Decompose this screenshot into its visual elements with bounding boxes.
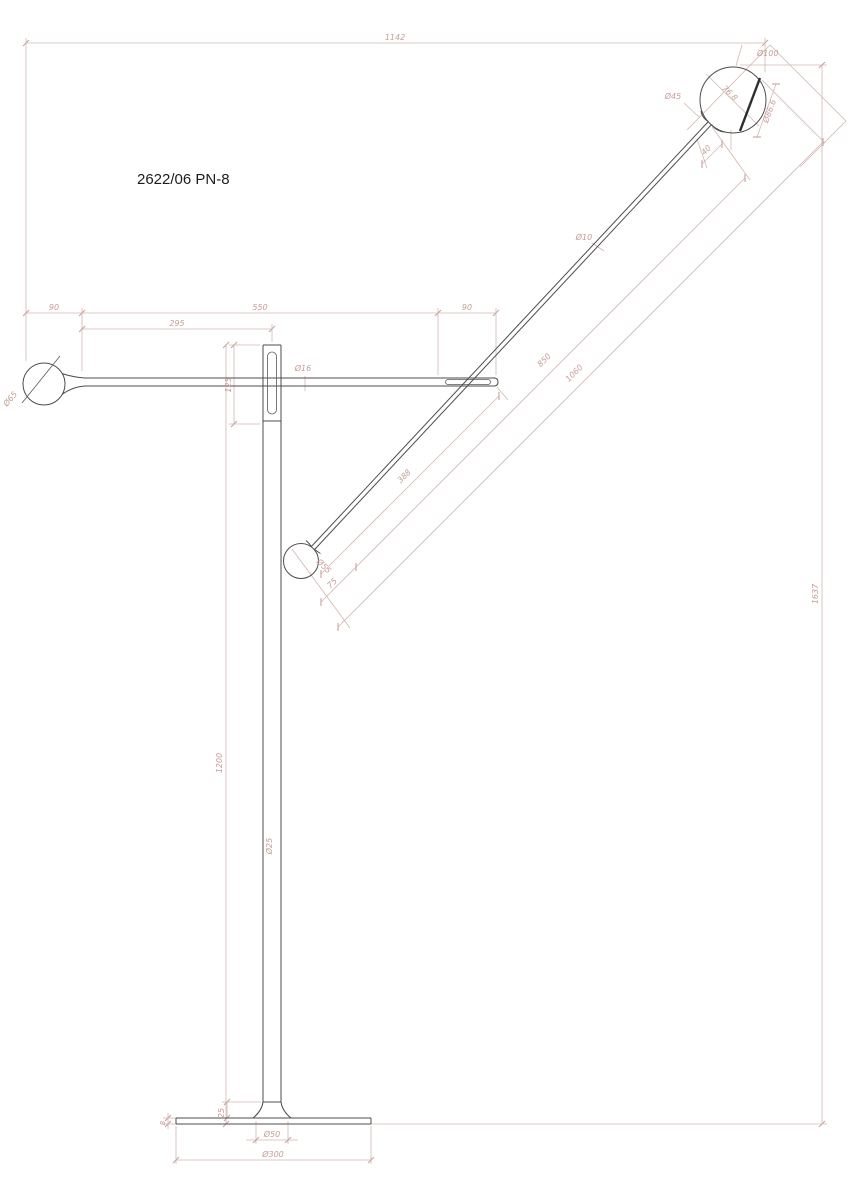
- lamp-structure: [22, 67, 766, 1124]
- rear-neck-lower: [62, 386, 85, 395]
- dim-arm-rear-label: 295: [169, 319, 184, 328]
- leader-head-dia: [736, 45, 742, 66]
- dim-rear-ball-dia-label: Ø65: [0, 389, 19, 409]
- dim-hub-dia-label: Ø50: [263, 1129, 280, 1139]
- dim-pole-dia-label: Ø25: [264, 838, 274, 855]
- head-box-side: [800, 121, 846, 167]
- dim-head-dia-label: Ø100: [756, 48, 779, 58]
- dim-seg-left-label: 90: [49, 303, 59, 312]
- dim-base-dia-label: Ø300: [261, 1149, 284, 1159]
- dim-neck-dia-label: Ø45: [664, 91, 681, 101]
- dim-arm-dia-label: Ø16: [294, 363, 311, 373]
- technical-drawing-page: 2622/06 PN-8 1142 1637 90 550 90 295 125…: [0, 0, 849, 1200]
- dimension-lines: [23, 38, 846, 1164]
- drawing-title: 2622/06 PN-8: [137, 171, 230, 188]
- dim-rod-total-label: 1060: [564, 363, 585, 384]
- dim-total-width-label: 1142: [385, 33, 405, 42]
- base-flare: [253, 1102, 263, 1118]
- dim-counterweight-dia-label: Ø55: [314, 556, 333, 575]
- dim-rod-dia-label: Ø10: [575, 232, 592, 242]
- dim-line-rod-total: [338, 142, 823, 627]
- rod-edge: [315, 125, 712, 550]
- dim-seg-right-label: 90: [462, 303, 472, 312]
- dim-pole-length-label: 1200: [215, 753, 224, 773]
- dim-bracket-label: 125: [224, 377, 233, 392]
- dim-rod-lower-label: 388: [396, 468, 413, 485]
- dimension-labels: 2622/06 PN-8 1142 1637 90 550 90 295 125…: [0, 33, 820, 1159]
- drawing-canvas: 2622/06 PN-8 1142 1637 90 550 90 295 125…: [0, 0, 849, 1200]
- bracket-slot: [268, 352, 277, 414]
- dim-plate-thickness-label: 8: [159, 1120, 167, 1125]
- rod-edge: [311, 122, 708, 547]
- dim-seg-mid-label: 550: [252, 303, 267, 312]
- dim-line-rod-upper: [321, 178, 745, 602]
- dim-counterweight-len-label: 75: [325, 576, 339, 590]
- rear-neck-upper: [62, 374, 85, 379]
- leader-neck-dia: [684, 103, 700, 118]
- rear-ball: [23, 363, 65, 405]
- dim-total-height-label: 1637: [811, 583, 820, 604]
- head-box-side: [770, 45, 846, 121]
- dim-hub-height-label: 25: [217, 1108, 226, 1118]
- base-flare: [281, 1102, 291, 1118]
- dim-head-face-label: Ø86.6: [760, 98, 778, 125]
- arm-tube: [85, 378, 498, 386]
- dim-rod-upper-label: 850: [536, 352, 553, 369]
- arm-slot: [446, 380, 491, 385]
- dim-line-rod-lower: [321, 396, 499, 574]
